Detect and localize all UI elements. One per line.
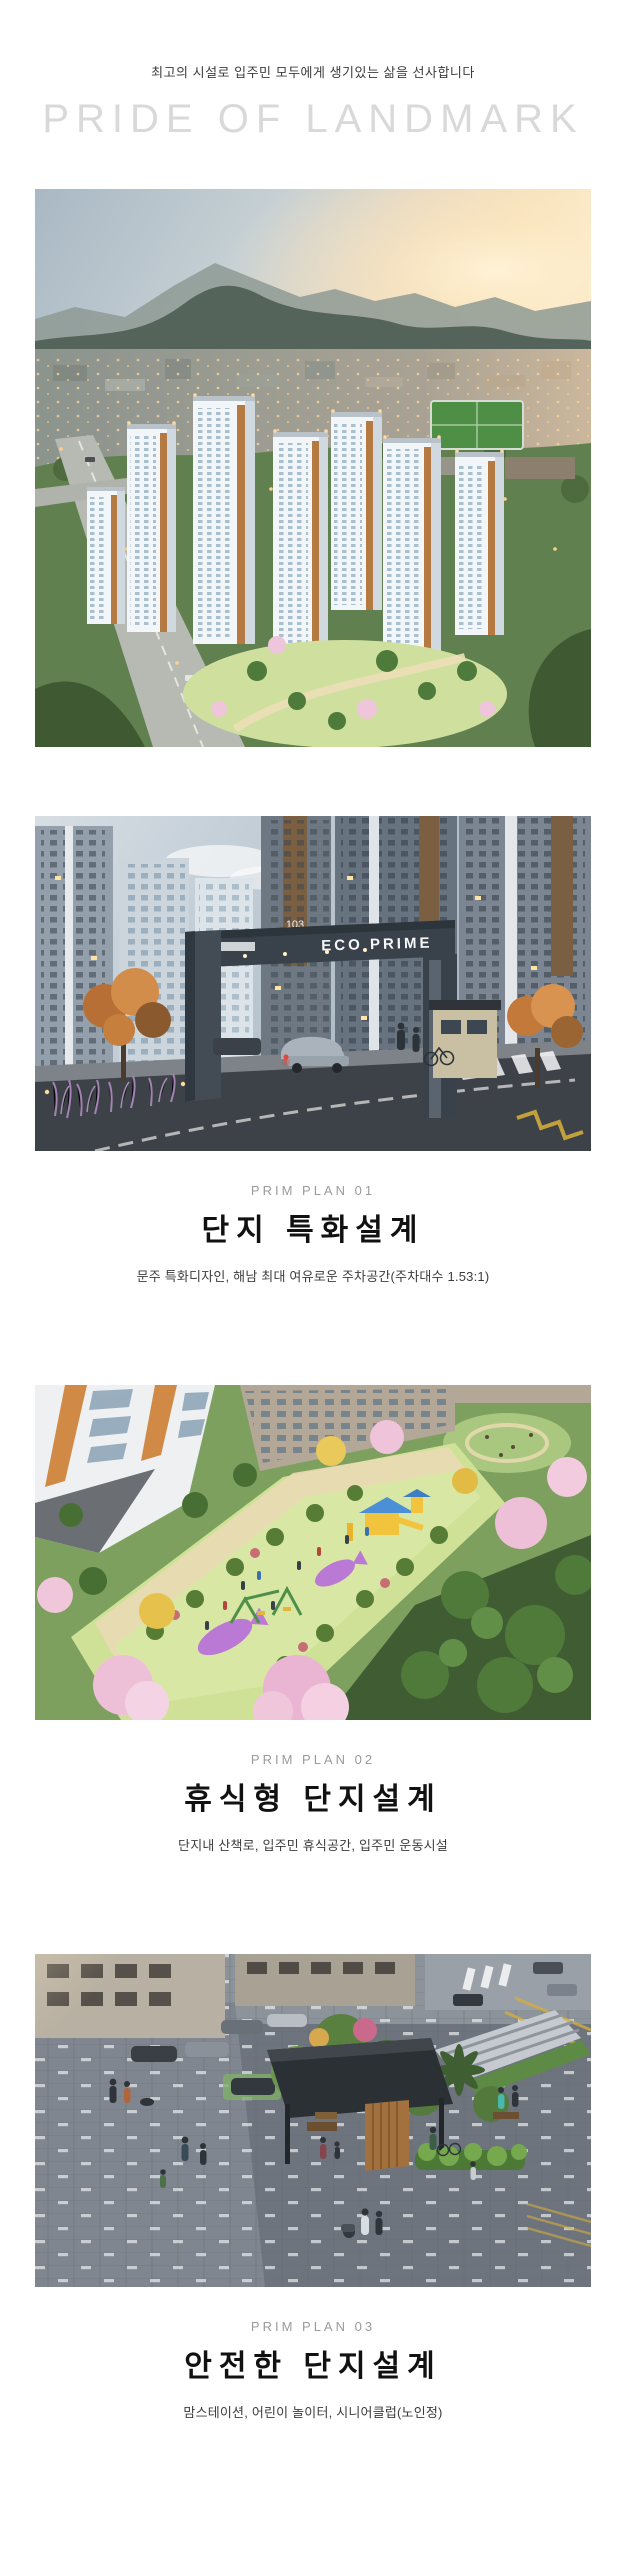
plan-label: PRIM PLAN 01 <box>0 1183 626 1199</box>
gate-entrance-image: 103 <box>35 816 591 1151</box>
plan-section-03: PRIM PLAN 03 안전한 단지설계 맘스테이션, 어린이 놀이터, 시니… <box>0 2287 626 2421</box>
plan-section-01: PRIM PLAN 01 단지 특화설계 문주 특화디자인, 해남 최대 여유로… <box>0 1151 626 1285</box>
plan-title: 휴식형 단지설계 <box>0 1782 626 1818</box>
headline-text: PRIDE OF LANDMARK <box>0 96 626 143</box>
hero-aerial-illustration <box>35 189 591 747</box>
plan-desc: 맘스테이션, 어린이 놀이터, 시니어클럽(노인정) <box>0 2405 626 2421</box>
gate-entrance-illustration: 103 <box>35 816 591 1151</box>
plan-desc: 단지내 산책로, 입주민 휴식공간, 입주민 운동시설 <box>0 1838 626 1854</box>
plan-section-02: PRIM PLAN 02 휴식형 단지설계 단지내 산책로, 입주민 휴식공간,… <box>0 1720 626 1854</box>
park-courtyard-image <box>35 1385 591 1720</box>
tagline-text: 최고의 시설로 입주민 모두에게 생기있는 삶을 선사합니다 <box>0 0 626 82</box>
hero-aerial-image <box>35 189 591 747</box>
landing-section: 최고의 시설로 입주민 모두에게 생기있는 삶을 선사합니다 PRIDE OF … <box>0 0 626 2560</box>
street-plaza-illustration <box>35 1954 591 2287</box>
plan-desc: 문주 특화디자인, 해남 최대 여유로운 주차공간(주차대수 1.53:1) <box>0 1269 626 1285</box>
plan-title: 안전한 단지설계 <box>0 2349 626 2385</box>
gate-sign-text: ECO PRIME <box>321 935 433 955</box>
plan-title: 단지 특화설계 <box>0 1213 626 1249</box>
plan-label: PRIM PLAN 02 <box>0 1752 626 1768</box>
street-plaza-image <box>35 1954 591 2287</box>
plan-label: PRIM PLAN 03 <box>0 2319 626 2335</box>
park-courtyard-illustration <box>35 1385 591 1720</box>
